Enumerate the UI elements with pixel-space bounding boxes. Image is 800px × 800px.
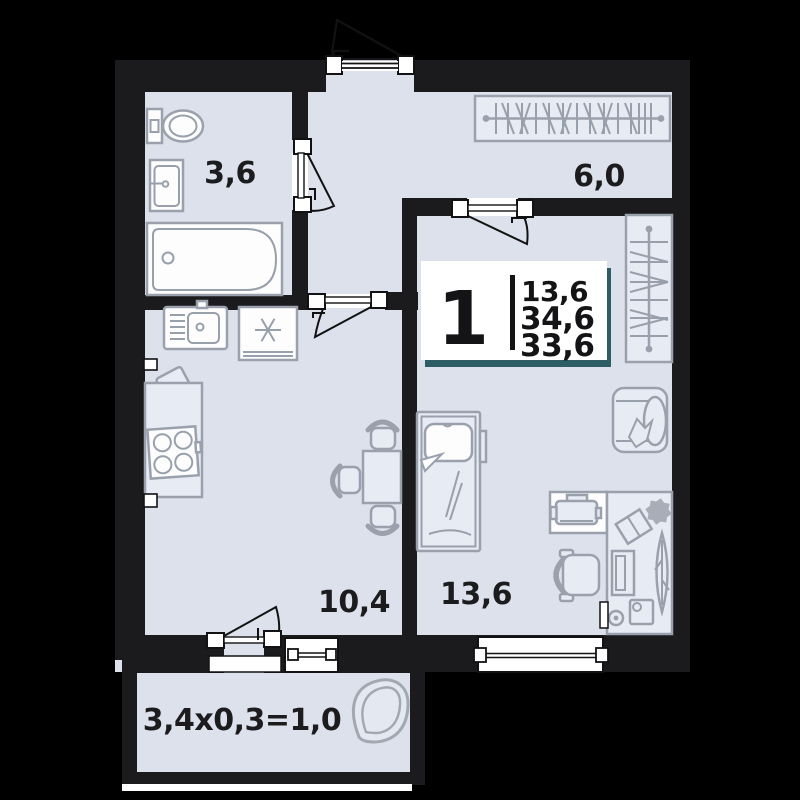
room-area-label: 3,6 — [204, 156, 256, 191]
washbasin-icon — [150, 160, 183, 211]
office-chair-icon — [556, 550, 599, 601]
sideboard-icon — [600, 492, 672, 634]
armchair-icon — [613, 388, 667, 452]
bedside-tab — [480, 431, 486, 462]
room-area-label: 13,6 — [440, 577, 512, 612]
balcony-chair-icon — [353, 680, 408, 742]
bedroom-window — [474, 637, 608, 672]
coat-rack-icon — [475, 96, 670, 141]
wall-tab — [144, 494, 157, 507]
dining-table-icon — [363, 451, 401, 503]
legend-divider — [510, 275, 515, 350]
floor-plan: 3,6 6,0 — [0, 0, 800, 800]
balcony-edge-strip — [122, 784, 412, 791]
refrigerator-icon — [239, 307, 297, 360]
desk-icon — [550, 492, 607, 533]
bathtub-icon — [147, 223, 282, 295]
legend: 1 13,6 34,6 33,6 — [421, 261, 611, 367]
balcony-window — [285, 638, 338, 672]
legend-room-count: 1 — [438, 276, 489, 362]
handle-tab — [600, 602, 608, 628]
bed-icon — [417, 412, 486, 551]
toilet-icon — [147, 109, 203, 143]
kitchen-sink-icon — [164, 301, 227, 349]
room-area-label: 6,0 — [573, 159, 625, 194]
wardrobe-icon — [626, 215, 672, 362]
wall-tab — [144, 359, 157, 370]
legend-area-3: 33,6 — [520, 328, 595, 364]
room-area-label: 3,4x0,3=1,0 — [143, 703, 341, 738]
room-area-label: 10,4 — [318, 585, 390, 620]
stove-icon — [147, 426, 202, 479]
floor-plan-canvas: 3,6 6,0 — [0, 0, 800, 800]
entrance-door — [326, 20, 414, 74]
